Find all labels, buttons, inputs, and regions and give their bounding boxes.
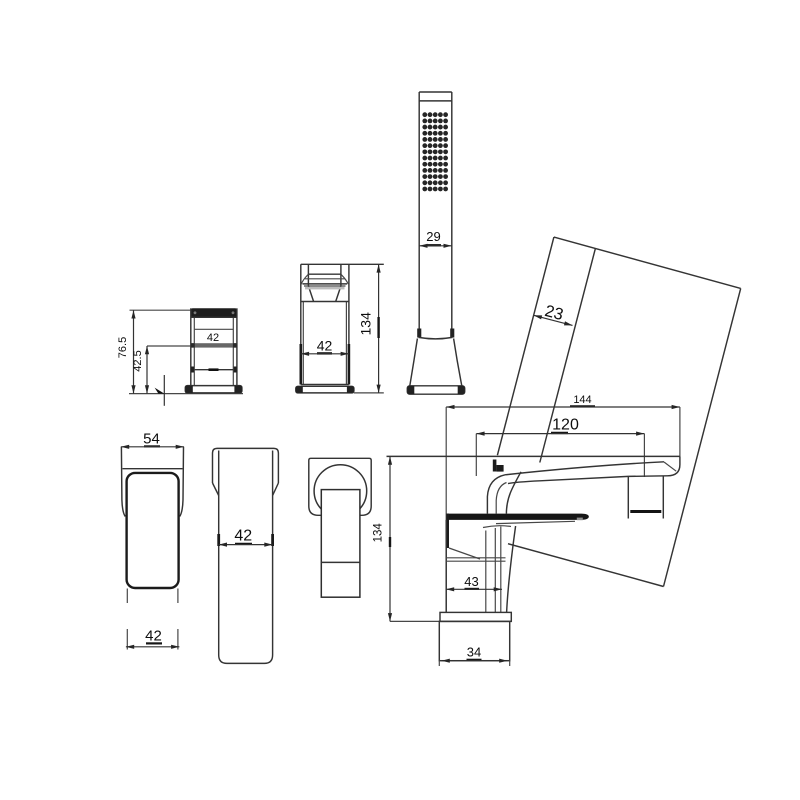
svg-text:29: 29 bbox=[426, 229, 440, 244]
svg-text:42: 42 bbox=[317, 338, 333, 354]
svg-text:134: 134 bbox=[373, 523, 385, 543]
svg-text:42.5: 42.5 bbox=[132, 350, 144, 371]
svg-text:43: 43 bbox=[464, 574, 478, 589]
svg-text:42: 42 bbox=[234, 528, 252, 545]
svg-text:76.5: 76.5 bbox=[117, 337, 129, 358]
svg-text:120: 120 bbox=[552, 417, 579, 434]
svg-text:144: 144 bbox=[573, 394, 591, 406]
svg-text:23: 23 bbox=[543, 302, 565, 324]
svg-text:134: 134 bbox=[358, 312, 374, 336]
svg-text:42: 42 bbox=[207, 332, 219, 344]
svg-text:42: 42 bbox=[145, 627, 162, 644]
svg-text:54: 54 bbox=[143, 430, 160, 447]
svg-text:34: 34 bbox=[467, 644, 481, 659]
